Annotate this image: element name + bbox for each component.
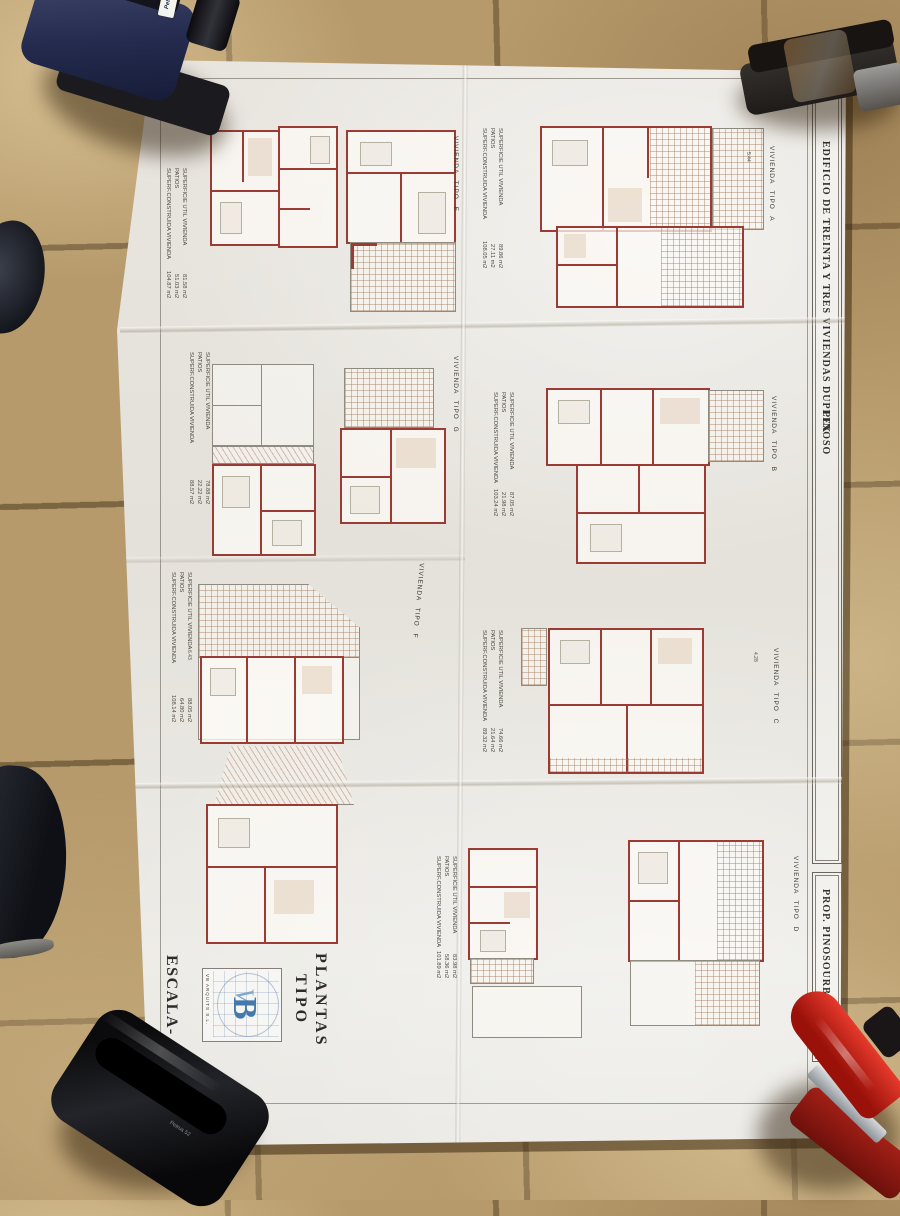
furniture — [220, 202, 242, 234]
wall — [578, 512, 704, 514]
area-line: SUPERF.CONSTRUIDA VIVIENDA89.32 m2 — [479, 630, 487, 752]
dimension-text: 5.44 — [745, 152, 751, 162]
stapler-black — [728, 10, 900, 140]
floor-plan — [628, 840, 764, 962]
wall — [351, 243, 354, 269]
sheet-title: PLANTAS TIPO — [286, 950, 330, 1050]
room-tint — [608, 188, 642, 222]
wall — [470, 922, 510, 924]
terrace-plan — [712, 128, 764, 230]
unit-label-a: VIVIENDA TIPO A — [768, 146, 775, 208]
area-block-5: SUPERFICIE UTIL VIVIENDA88.05 m2 PATIOS6… — [168, 572, 192, 722]
area-label: PATIOS — [176, 572, 184, 592]
area-value: 58.36 m2 — [441, 954, 449, 978]
wall — [647, 128, 649, 178]
area-line: PATIOS21.98 m2 — [498, 392, 506, 516]
area-label: SUPERFICIE UTIL VIVIENDA — [202, 352, 210, 429]
area-value: 21.98 m2 — [498, 492, 506, 516]
area-block-2: SUPERFICIE UTIL VIVIENDA89.86 m2 PATIOS2… — [479, 128, 503, 268]
floor-plan — [206, 804, 338, 944]
wall — [264, 866, 266, 942]
wall — [630, 900, 678, 902]
sheet-title-line1: PLANTAS — [310, 950, 330, 1050]
floor-plan — [212, 364, 314, 446]
punch-body — [41, 1000, 278, 1216]
unit-label-d: VIVIENDA TIPO D — [792, 856, 799, 912]
furniture — [418, 192, 446, 234]
area-line: PATIOS51.03 m2 — [171, 168, 179, 298]
title-band: EDIFICIO DE TREINTA Y TRES VIVIENDAS DUP… — [812, 94, 842, 864]
area-value: 88.57 m2 — [186, 480, 194, 504]
area-label: SUPERF.CONSTRUIDA VIVIENDA — [186, 352, 194, 443]
shoe-tip — [0, 763, 73, 962]
wall — [678, 842, 680, 960]
area-label: SUPERF.CONSTRUIDA VIVIENDA — [479, 128, 487, 219]
area-label: PATIOS — [487, 630, 495, 650]
wall — [280, 208, 310, 210]
furniture — [558, 400, 590, 424]
tape-wrap — [782, 28, 857, 103]
area-line: SUPERFICIE UTIL VIVIENDA74.66 m2 — [495, 630, 503, 752]
area-label: SUPERF.CONSTRUIDA VIVIENDA — [168, 572, 176, 663]
area-label: PATIOS — [487, 128, 495, 148]
wall — [348, 172, 454, 174]
hole-punch-blue: Petrus — [0, 0, 260, 180]
area-label: SUPERFICIE UTIL VIVIENDA — [495, 128, 503, 205]
wall — [342, 476, 390, 478]
floor-plan — [576, 464, 706, 564]
wall — [294, 658, 296, 742]
floor-plan — [346, 130, 456, 244]
edge-title: EDIFICIO DE TREINTA Y TRES VIVIENDAS DUP… — [820, 141, 831, 433]
furniture — [222, 476, 250, 508]
room-tint — [396, 438, 436, 468]
floor-plan — [212, 464, 316, 556]
wall — [280, 168, 336, 170]
terrace-hatch — [695, 961, 759, 1025]
area-value: 22.22 m2 — [194, 480, 202, 504]
wall — [470, 886, 536, 888]
floor-plan — [200, 656, 344, 744]
wall — [260, 510, 314, 512]
furniture — [272, 520, 302, 546]
logo-monogram: VB — [225, 971, 263, 1037]
terrace-hatch — [717, 842, 762, 960]
wall — [652, 390, 654, 464]
unit-label-g: VIVIENDA TIPO G — [452, 356, 459, 418]
room-tint — [302, 666, 332, 694]
area-label: SUPERFICIE UTIL VIVIENDA — [506, 392, 514, 469]
area-value: 74.66 m2 — [495, 728, 503, 752]
room-tint — [504, 892, 530, 918]
area-label: SUPERF.CONSTRUIDA VIVIENDA — [479, 630, 487, 721]
area-block-6: SUPERFICIE UTIL VIVIENDA74.66 m2 PATIOS2… — [479, 630, 503, 752]
area-block-7: SUPERFICIE UTIL VIVIENDA83.98 m2 PATIOS5… — [433, 856, 457, 978]
sheet-title-line2: TIPO — [290, 950, 310, 1050]
roof-hatch — [212, 446, 314, 464]
stapler-red — [748, 1020, 900, 1210]
wall — [400, 172, 402, 242]
unit-label-c: VIVIENDA TIPO C — [772, 648, 779, 714]
furniture — [350, 486, 380, 514]
wall — [600, 630, 602, 704]
area-value: 81.58 m2 — [179, 274, 187, 298]
patio-outline — [472, 986, 582, 1038]
patio-hatch — [521, 628, 547, 686]
wall — [351, 243, 377, 246]
furniture — [210, 668, 236, 696]
furniture — [638, 852, 668, 884]
wall — [246, 658, 248, 742]
area-value: 103.24 m2 — [490, 489, 498, 516]
logo-letter-v: V — [230, 988, 259, 997]
logo-letter-b: B — [226, 997, 263, 1020]
floor-plan — [548, 628, 704, 706]
floor-plan — [340, 428, 446, 524]
area-value: 64.80 m2 — [176, 698, 184, 722]
area-value: 89.32 m2 — [479, 728, 487, 752]
floor-plan — [468, 848, 538, 960]
area-line: SUPERF.CONSTRUIDA VIVIENDA104.87 m2 — [163, 168, 171, 298]
terrace-plan — [344, 368, 434, 428]
hole-punch-black: Petrus 52 — [20, 1030, 270, 1210]
wall — [212, 190, 278, 192]
area-value: 87.05 m2 — [506, 492, 514, 516]
area-line: PATIOS22.22 m2 — [194, 352, 202, 504]
area-label: SUPERFICIE UTIL VIVIENDA — [495, 630, 503, 707]
stapler-metal-end — [852, 62, 900, 113]
area-line: PATIOS58.36 m2 — [441, 856, 449, 978]
area-line: PATIOS21.64 m2 — [487, 630, 495, 752]
floor-plan — [278, 126, 338, 248]
area-value: 101.89 m2 — [433, 951, 441, 978]
area-value: 51.03 m2 — [171, 274, 179, 298]
room-tint — [564, 234, 586, 258]
area-block-3: SUPERFICIE UTIL VIVIENDA78.88 m2 PATIOS2… — [186, 352, 210, 504]
furniture — [560, 640, 590, 664]
wall — [638, 466, 640, 512]
roof-hatch — [214, 746, 354, 805]
dimension-text: 4.28 — [752, 652, 758, 662]
room-tint — [274, 880, 314, 914]
furniture — [552, 140, 588, 166]
area-value: 27.11 m2 — [487, 244, 495, 268]
furniture — [360, 142, 392, 166]
terrace-plan — [350, 242, 456, 312]
area-line: SUPERF.CONSTRUIDA VIVIENDA108.05 m2 — [479, 128, 487, 268]
area-label: SUPERF.CONSTRUIDA VIVIENDA — [490, 392, 498, 483]
terrace-hatch — [470, 958, 534, 984]
area-value: 108.05 m2 — [479, 241, 487, 268]
area-line: SUPERF.CONSTRUIDA VIVIENDA101.89 m2 — [433, 856, 441, 978]
wall — [602, 128, 604, 230]
room-tint — [658, 638, 692, 664]
area-line: SUPERFICIE UTIL VIVIENDA88.05 m2 — [184, 572, 192, 722]
wall — [390, 430, 392, 522]
area-label: PATIOS — [441, 856, 449, 876]
terrace-hatch — [550, 758, 702, 772]
furniture — [480, 930, 506, 952]
photo-scene: { "sheet": { "edge_title": "EDIFICIO DE … — [0, 0, 900, 1200]
area-label: SUPERF.CONSTRUIDA VIVIENDA — [163, 168, 171, 259]
wall — [213, 405, 261, 406]
area-value: 21.64 m2 — [487, 728, 495, 752]
area-line: SUPERFICIE UTIL VIVIENDA87.05 m2 — [506, 392, 514, 516]
shoe-tip — [0, 214, 53, 339]
area-block-1: SUPERFICIE UTIL VIVIENDA81.58 m2 PATIOS5… — [163, 168, 187, 298]
room-tint — [660, 398, 700, 424]
area-value: 108.14 m2 — [168, 695, 176, 722]
area-value: 78.88 m2 — [202, 480, 210, 504]
area-value: 104.87 m2 — [163, 271, 171, 298]
firm-label: VB ARQUITS S.L. — [205, 974, 210, 1036]
area-line: SUPERF.CONSTRUIDA VIVIENDA108.14 m2 — [168, 572, 176, 722]
area-line: SUPERFICIE UTIL VIVIENDA89.86 m2 — [495, 128, 503, 268]
area-line: PATIOS64.80 m2 — [176, 572, 184, 722]
wall — [261, 365, 262, 445]
area-label: SUPERF.CONSTRUIDA VIVIENDA — [433, 856, 441, 947]
area-label: SUPERFICIE UTIL VIVIENDA — [184, 572, 192, 649]
area-line: SUPERFICIE UTIL VIVIENDA78.88 m2 — [202, 352, 210, 504]
area-value: 88.05 m2 — [184, 698, 192, 722]
area-line: SUPERF.CONSTRUIDA VIVIENDA88.57 m2 — [186, 352, 194, 504]
wall — [558, 264, 616, 266]
floor-plan — [548, 704, 704, 774]
wall — [616, 228, 618, 306]
punch-knob — [184, 0, 241, 53]
terrace-hatch — [661, 228, 742, 306]
area-label: PATIOS — [498, 392, 506, 412]
area-line: PATIOS27.11 m2 — [487, 128, 495, 268]
wall — [600, 390, 602, 464]
furniture — [590, 524, 622, 552]
unit-label-b: VIVIENDA TIPO B — [770, 396, 777, 462]
area-line: SUPERF.CONSTRUIDA VIVIENDA103.24 m2 — [490, 392, 498, 516]
dimension-text: 6.43 — [186, 650, 192, 660]
patio-outline — [630, 960, 760, 1026]
wall — [650, 630, 652, 704]
terrace-plan — [708, 390, 764, 462]
unit-label-e: VIVIENDA TIPO E — [452, 136, 459, 202]
furniture — [218, 818, 250, 848]
area-value: 89.86 m2 — [495, 244, 503, 268]
edge-location: PINOSO — [820, 411, 831, 455]
floor-plan — [556, 226, 744, 308]
furniture — [310, 136, 330, 164]
wall — [208, 866, 336, 868]
terrace-hatch — [650, 128, 710, 230]
area-block-4: SUPERFICIE UTIL VIVIENDA87.05 m2 PATIOS2… — [490, 392, 514, 516]
floor-plan — [540, 126, 712, 232]
area-line: SUPERFICIE UTIL VIVIENDA81.58 m2 — [179, 168, 187, 298]
area-label: PATIOS — [194, 352, 202, 372]
shoe-sole — [0, 936, 55, 961]
floor-plan — [546, 388, 710, 466]
